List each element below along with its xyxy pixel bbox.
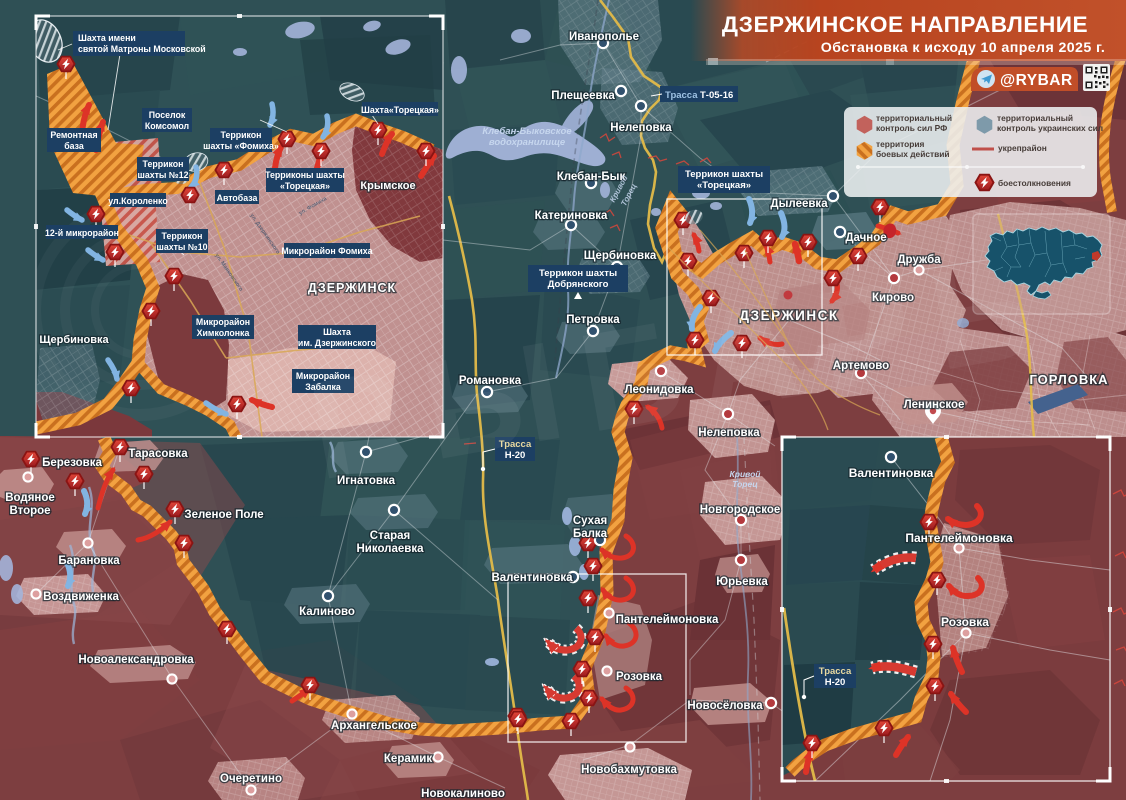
svg-text:территория: территория xyxy=(876,139,925,149)
svg-text:территориальный: территориальный xyxy=(876,113,952,123)
svg-text:Шахта«Торецкая»: Шахта«Торецкая» xyxy=(361,105,439,115)
svg-text:Микрорайон Фомиха: Микрорайон Фомиха xyxy=(281,246,372,256)
svg-text:укрепрайон: укрепрайон xyxy=(998,143,1047,153)
svg-text:шахты №12: шахты №12 xyxy=(138,170,189,180)
svg-text:Барановка: Барановка xyxy=(58,555,120,567)
svg-text:территориальный: территориальный xyxy=(997,113,1073,123)
svg-text:Розовка: Розовка xyxy=(941,615,989,629)
svg-text:шахты «Фомиха»: шахты «Фомиха» xyxy=(203,141,279,151)
svg-text:шахты №10: шахты №10 xyxy=(157,242,208,252)
svg-text:Балка: Балка xyxy=(573,528,608,540)
svg-text:Второе: Второе xyxy=(9,505,50,517)
svg-text:Террикон: Террикон xyxy=(143,159,184,169)
svg-text:Шахта имени: Шахта имени xyxy=(78,33,136,43)
svg-text:Валентиновка: Валентиновка xyxy=(491,572,573,584)
svg-text:Щербиновка: Щербиновка xyxy=(39,334,109,346)
svg-text:Микрорайон: Микрорайон xyxy=(196,317,250,327)
svg-text:Террикон: Террикон xyxy=(162,231,203,241)
svg-text:Автобаза: Автобаза xyxy=(217,193,258,203)
svg-text:Терриконы шахты: Терриконы шахты xyxy=(265,170,345,180)
svg-text:Иванополье: Иванополье xyxy=(569,31,639,43)
svg-text:Н-20: Н-20 xyxy=(825,677,846,688)
svg-text:контроль украинских сил: контроль украинских сил xyxy=(997,123,1103,133)
svg-text:Поселок: Поселок xyxy=(149,110,186,120)
svg-text:Новокалиново: Новокалиново xyxy=(421,788,505,800)
svg-text:Керамик: Керамик xyxy=(384,753,432,765)
svg-text:ул.Короленко: ул.Короленко xyxy=(108,196,168,206)
svg-text:Валентиновка: Валентиновка xyxy=(849,466,934,480)
svg-text:Террикон: Террикон xyxy=(221,130,262,140)
svg-text:Пантелеймоновка: Пантелеймоновка xyxy=(905,531,1013,545)
svg-text:12-й микрорайон: 12-й микрорайон xyxy=(45,228,119,238)
svg-text:Ремонтная: Ремонтная xyxy=(50,130,97,140)
svg-text:Клебан-Бык: Клебан-Бык xyxy=(557,171,626,183)
svg-text:боевых действий: боевых действий xyxy=(876,149,950,159)
svg-text:Щербиновка: Щербиновка xyxy=(584,250,657,262)
svg-text:Кривой: Кривой xyxy=(730,469,762,479)
svg-text:контроль сил РФ: контроль сил РФ xyxy=(876,123,947,133)
svg-text:«Торецкая»: «Торецкая» xyxy=(280,181,330,191)
svg-text:Террикон шахты: Террикон шахты xyxy=(539,268,617,279)
svg-text:Крымское: Крымское xyxy=(360,180,415,192)
svg-text:Зеленое Поле: Зеленое Поле xyxy=(184,509,263,521)
svg-text:«Торецкая»: «Торецкая» xyxy=(697,180,751,191)
svg-text:Трасса: Трасса xyxy=(819,666,852,677)
svg-text:Добрянского: Добрянского xyxy=(548,279,609,290)
svg-text:Торец: Торец xyxy=(732,479,758,489)
svg-text:святой Матроны Московской: святой Матроны Московской xyxy=(78,44,206,54)
svg-text:Розовка: Розовка xyxy=(616,671,663,683)
svg-text:боестолкновения: боестолкновения xyxy=(998,178,1071,188)
svg-text:Клебан-Быковское: Клебан-Быковское xyxy=(482,126,572,137)
svg-text:Катериновка: Катериновка xyxy=(535,210,608,222)
svg-text:Трасса: Трасса xyxy=(665,90,698,101)
svg-text:Комсомол: Комсомол xyxy=(145,121,189,131)
svg-text:Сухая: Сухая xyxy=(573,515,607,527)
svg-text:база: база xyxy=(64,141,84,151)
svg-text:Дылеевка: Дылеевка xyxy=(770,198,828,210)
svg-text:Нелеповка: Нелеповка xyxy=(610,122,672,134)
svg-text:Тарасовка: Тарасовка xyxy=(128,448,188,460)
svg-text:Очеретино: Очеретино xyxy=(220,773,282,785)
svg-text:Дачное: Дачное xyxy=(845,232,886,244)
svg-text:Архангельское: Архангельское xyxy=(331,720,417,732)
svg-text:Новобахмутовка: Новобахмутовка xyxy=(581,764,677,776)
svg-text:Плещеевка: Плещеевка xyxy=(551,90,615,102)
svg-text:Террикон шахты: Террикон шахты xyxy=(685,169,763,180)
svg-text:ДЗЕРЖИНСК: ДЗЕРЖИНСК xyxy=(308,281,396,295)
svg-text:Химколонка: Химколонка xyxy=(197,328,250,338)
svg-text:Новоалександровка: Новоалександровка xyxy=(78,654,194,666)
svg-text:водохранилище: водохранилище xyxy=(489,137,566,148)
svg-text:Березовка: Березовка xyxy=(42,457,102,469)
svg-text:Обстановка к исходу 10 апреля: Обстановка к исходу 10 апреля 2025 г. xyxy=(821,40,1105,56)
svg-text:Водяное: Водяное xyxy=(5,492,55,504)
svg-text:Старая: Старая xyxy=(370,530,410,542)
svg-text:Новосёловка: Новосёловка xyxy=(687,700,763,712)
svg-text:Калиново: Калиново xyxy=(299,606,355,618)
svg-text:Воздвиженка: Воздвиженка xyxy=(43,591,119,603)
svg-text:Пантелеймоновка: Пантелеймоновка xyxy=(616,614,719,626)
svg-text:ДЗЕРЖИНСКОЕ НАПРАВЛЕНИЕ: ДЗЕРЖИНСКОЕ НАПРАВЛЕНИЕ xyxy=(722,12,1088,37)
svg-text:Шахта: Шахта xyxy=(323,327,351,337)
svg-text:Новгородское: Новгородское xyxy=(700,504,781,516)
svg-text:Юрьевка: Юрьевка xyxy=(716,576,768,588)
svg-text:Т-05-16: Т-05-16 xyxy=(700,90,733,101)
svg-text:@RYBAR: @RYBAR xyxy=(1000,72,1073,89)
svg-text:Николаевка: Николаевка xyxy=(356,543,424,555)
